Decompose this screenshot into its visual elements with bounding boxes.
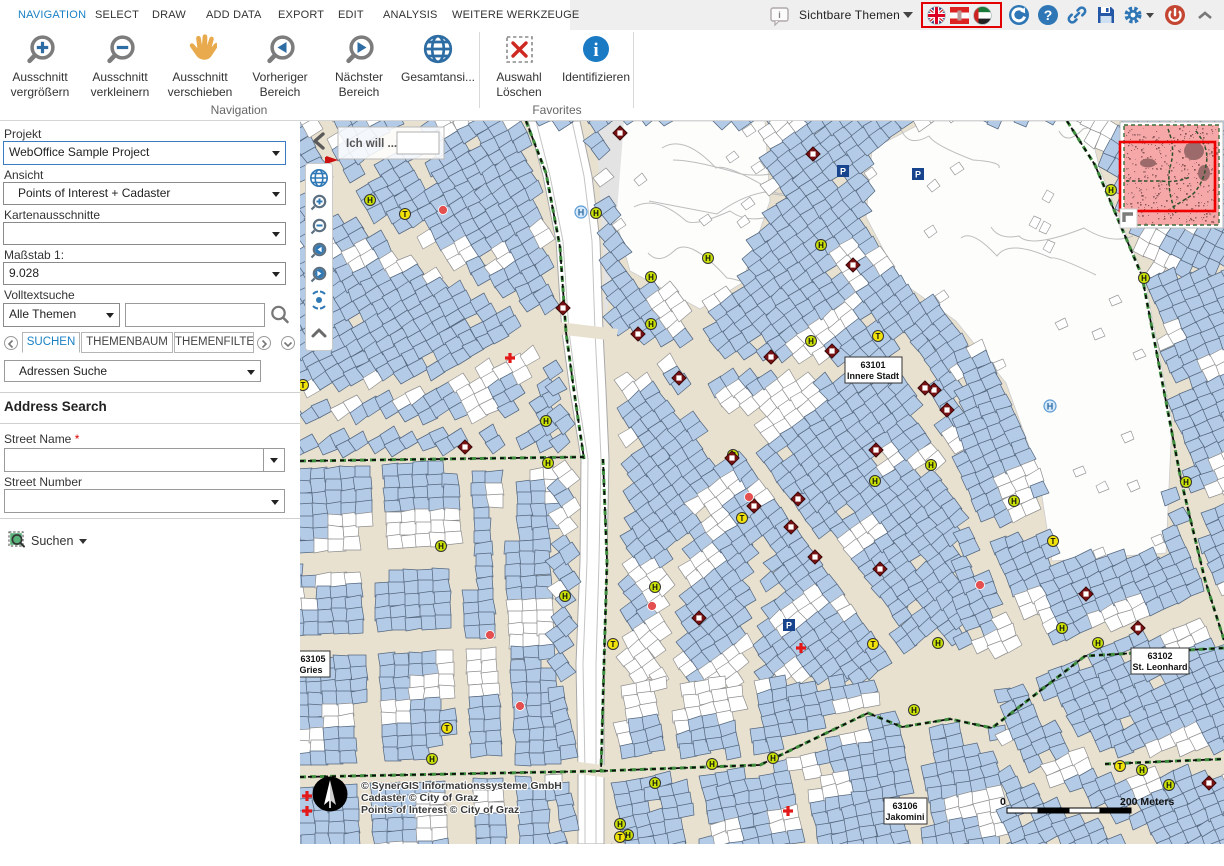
svg-text:H: H [545, 459, 551, 468]
svg-text:H: H [1183, 478, 1189, 487]
svg-text:200 Meters: 200 Meters [1120, 796, 1174, 808]
svg-text:P: P [840, 167, 846, 177]
svg-text:H: H [1095, 639, 1101, 648]
svg-text:i: i [593, 40, 598, 61]
svg-text:H: H [1108, 186, 1114, 195]
svg-text:T: T [876, 332, 881, 341]
svg-text:?: ? [1044, 7, 1053, 23]
svg-text:0: 0 [1000, 796, 1006, 808]
svg-text:T: T [871, 640, 876, 649]
svg-text:H: H [593, 209, 599, 218]
svg-text:Innere Stadt: Innere Stadt [847, 371, 899, 381]
svg-text:63106: 63106 [892, 801, 917, 811]
svg-text:T: T [618, 833, 623, 842]
svg-text:63101: 63101 [860, 360, 885, 370]
svg-text:H: H [367, 196, 373, 205]
svg-text:H: H [652, 779, 658, 788]
svg-text:H: H [808, 337, 814, 346]
svg-text:H: H [872, 477, 878, 486]
svg-text:H: H [1139, 766, 1145, 775]
svg-text:Ich will ...: Ich will ... [346, 138, 397, 150]
svg-text:H: H [818, 241, 824, 250]
svg-text:© SynerGIS Informationssysteme: © SynerGIS Informationssysteme GmbH [361, 780, 562, 792]
svg-text:H: H [617, 820, 623, 829]
svg-text:H: H [648, 273, 654, 282]
svg-text:H: H [578, 208, 585, 218]
svg-text:H: H [911, 706, 917, 715]
svg-text:T: T [301, 381, 306, 390]
svg-text:H: H [438, 542, 444, 551]
svg-text:P: P [915, 170, 921, 180]
svg-text:i: i [778, 10, 781, 20]
svg-text:H: H [705, 254, 711, 263]
svg-text:H: H [652, 583, 658, 592]
svg-text:H: H [770, 754, 776, 763]
svg-text:H: H [1166, 781, 1172, 790]
svg-text:63105: 63105 [300, 654, 325, 664]
svg-text:T: T [740, 514, 745, 523]
svg-text:T: T [1051, 537, 1056, 546]
svg-text:Cadaster © City of Graz: Cadaster © City of Graz [361, 792, 478, 804]
svg-text:H: H [1059, 624, 1065, 633]
svg-text:H: H [928, 461, 934, 470]
svg-text:Points of Interest © City of G: Points of Interest © City of Graz [361, 804, 519, 816]
svg-text:H: H [709, 760, 715, 769]
svg-text:Gries: Gries [300, 665, 323, 675]
svg-text:H: H [543, 417, 549, 426]
svg-text:Jakomini: Jakomini [885, 812, 924, 822]
svg-text:H: H [562, 592, 568, 601]
svg-text:T: T [445, 724, 450, 733]
svg-text:H: H [625, 831, 631, 840]
svg-text:H: H [429, 755, 435, 764]
svg-text:T: T [1118, 762, 1123, 771]
svg-text:St. Leonhard: St. Leonhard [1132, 662, 1187, 672]
svg-text:63102: 63102 [1147, 651, 1172, 661]
svg-text:P: P [786, 621, 792, 631]
svg-text:H: H [1141, 274, 1147, 283]
svg-text:H: H [1011, 497, 1017, 506]
svg-text:H: H [935, 639, 941, 648]
svg-text:T: T [403, 210, 408, 219]
svg-text:H: H [648, 320, 654, 329]
svg-text:T: T [611, 640, 616, 649]
svg-text:H: H [1047, 402, 1054, 412]
